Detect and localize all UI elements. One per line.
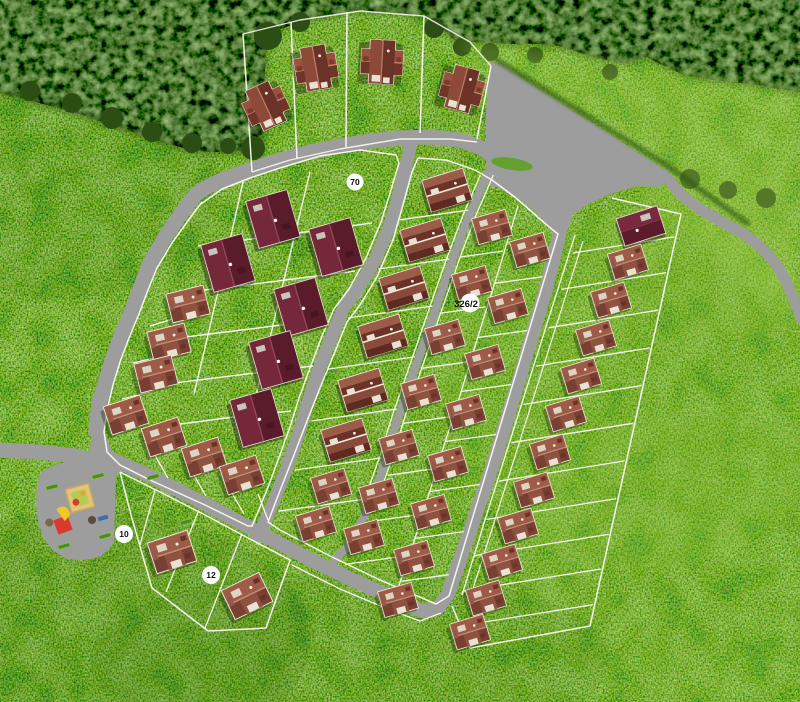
svg-text:326/2: 326/2	[454, 299, 478, 310]
svg-text:10: 10	[119, 529, 129, 539]
svg-text:12: 12	[206, 570, 216, 580]
svg-text:70: 70	[350, 177, 360, 187]
